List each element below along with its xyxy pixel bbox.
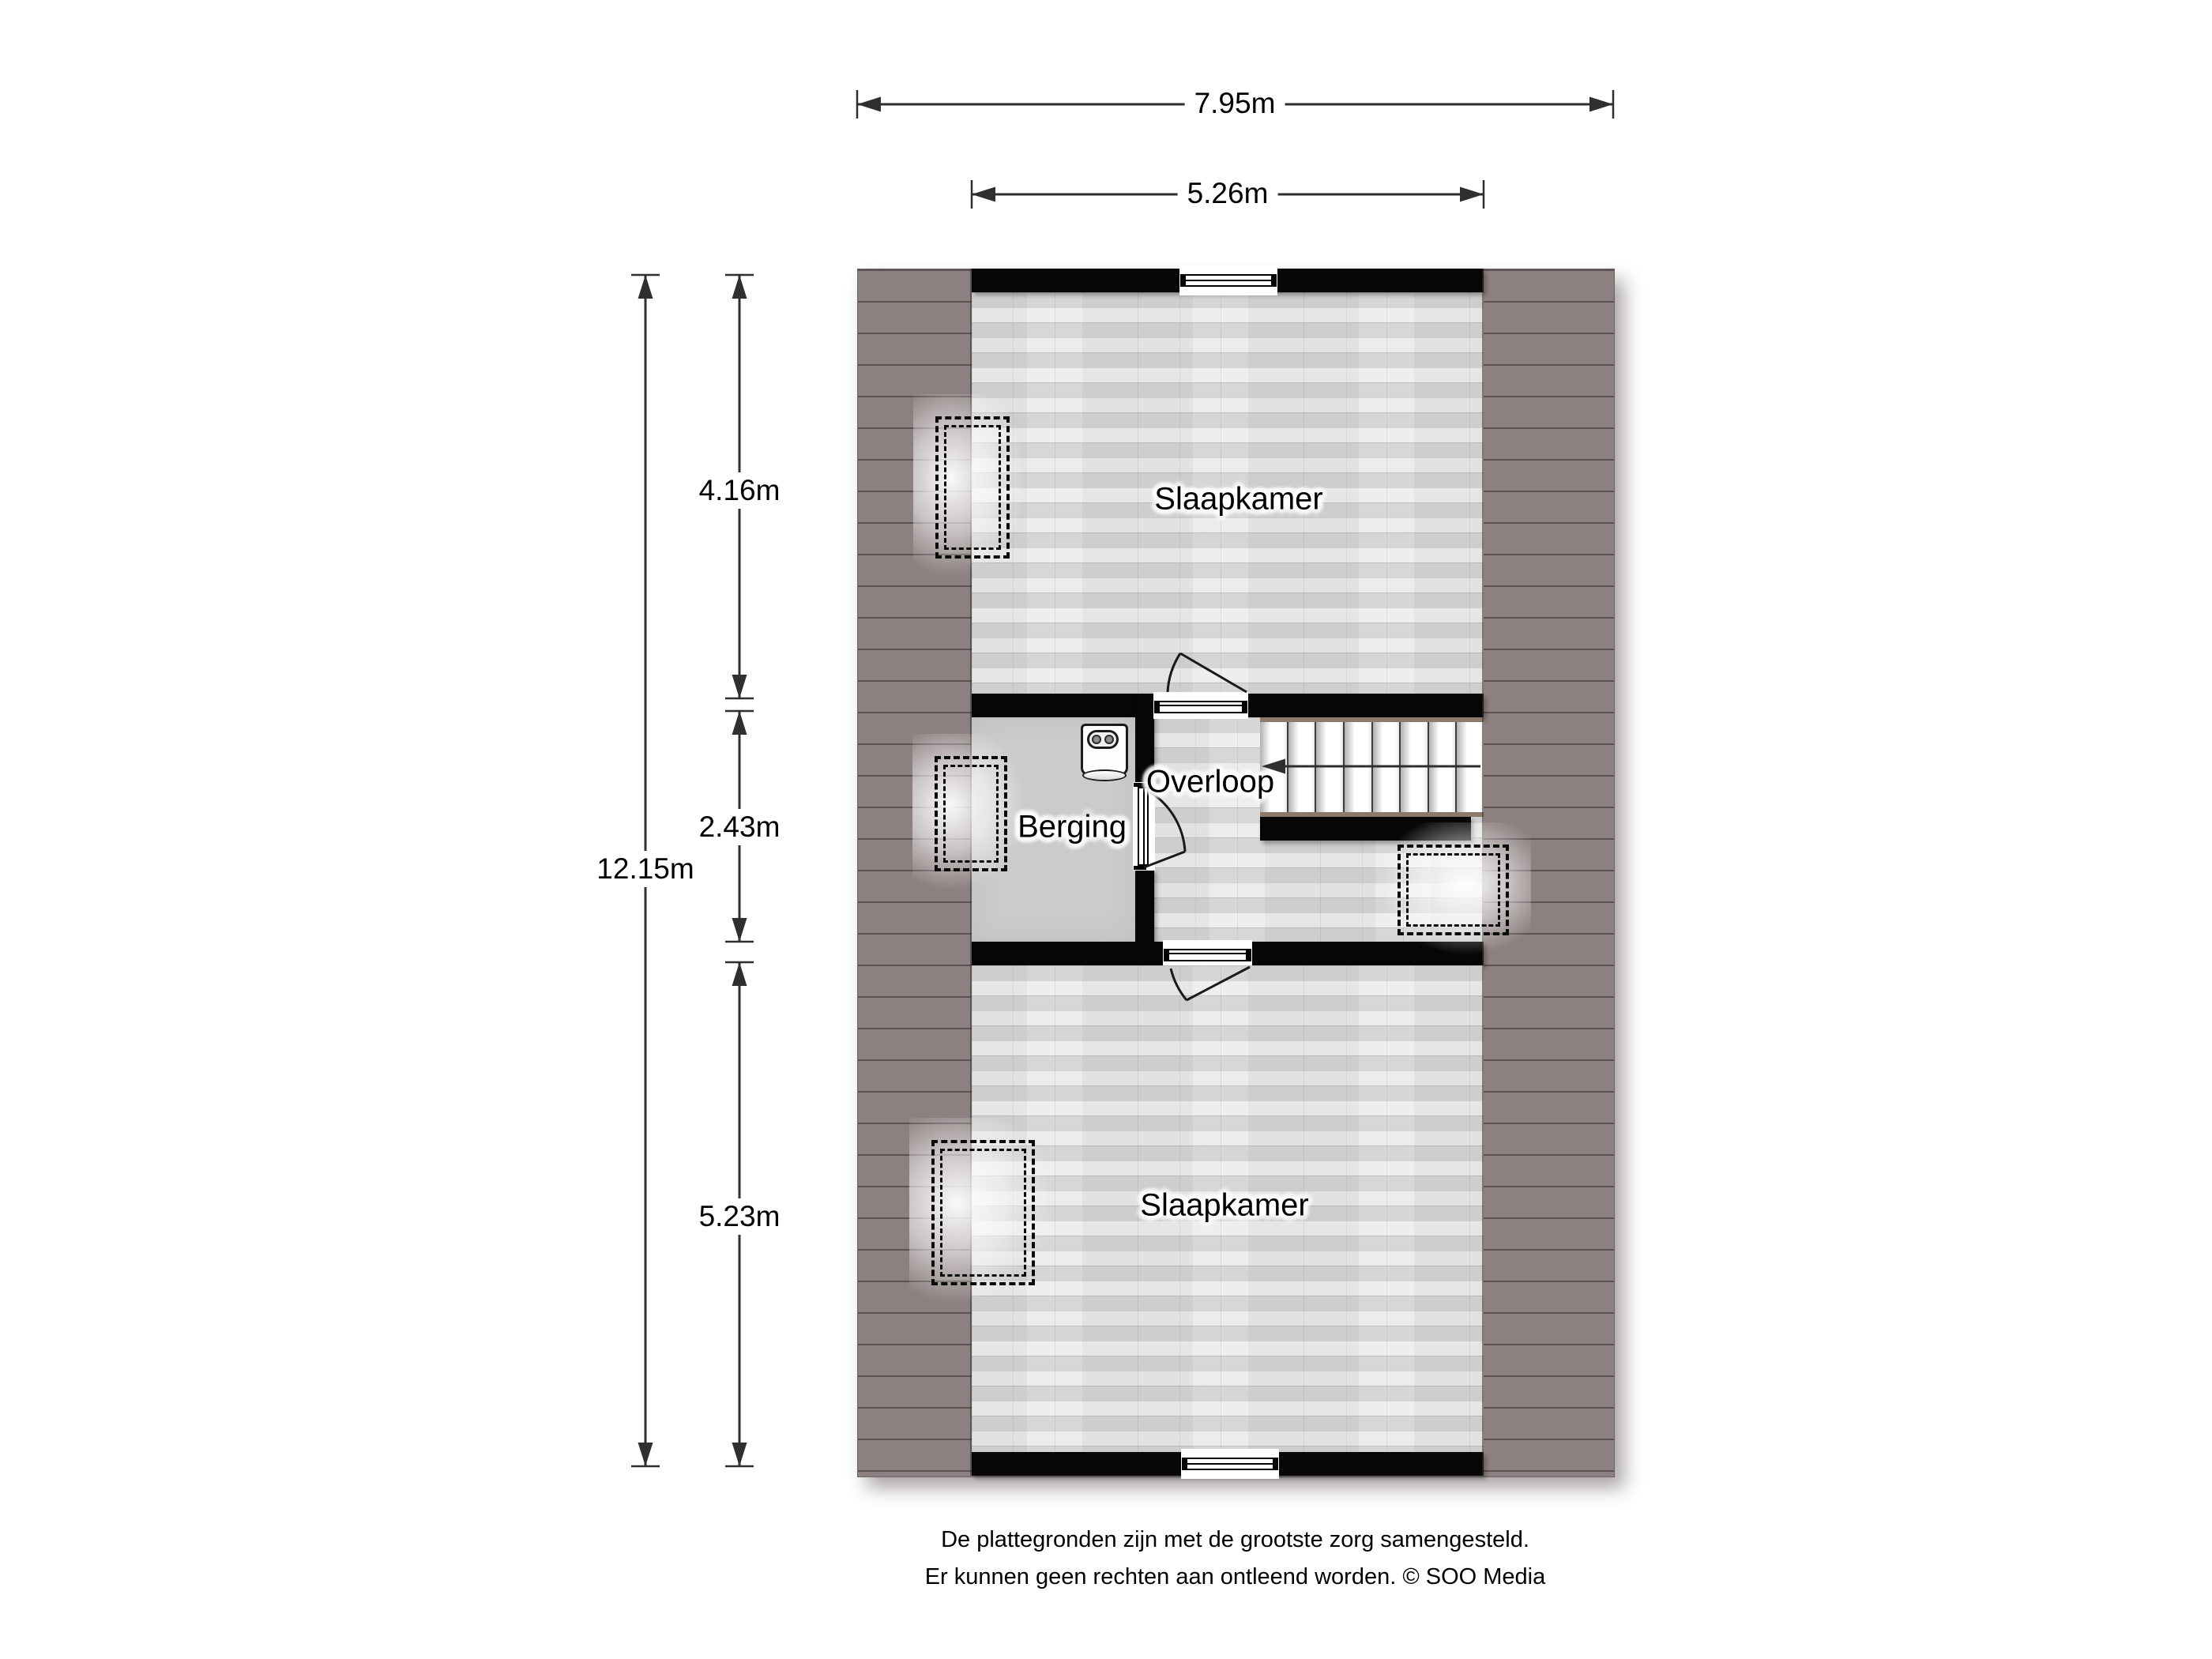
door-bottom-panel-line xyxy=(1168,953,1247,954)
skylight-right-icon xyxy=(1398,845,1509,935)
boiler-pipe-left xyxy=(1092,735,1101,744)
skylight-inner-frame xyxy=(1406,853,1500,927)
dim-label-bottom-section: 5.23m xyxy=(690,1198,790,1235)
room-label-overloop: Overloop xyxy=(1146,765,1274,800)
boiler-icon xyxy=(1081,724,1128,776)
skylight-inner-frame xyxy=(944,425,1001,550)
wall-berging-right-lower xyxy=(1135,869,1154,942)
disclaimer-line-1: De plattegronden zijn met de grootste zo… xyxy=(857,1522,1613,1559)
stair-tread xyxy=(1455,722,1484,812)
door-bottom-leaf-icon xyxy=(1163,940,1252,967)
page: { "plan": { "rooms": [ { "label": "Slaap… xyxy=(0,0,2212,1659)
door-bottom-cap-left xyxy=(1164,949,1168,961)
dim-section-heights xyxy=(725,275,754,1466)
window-bottom-icon xyxy=(1181,1449,1279,1479)
stair-tread xyxy=(1428,722,1456,812)
door-top-leaf-icon xyxy=(1153,692,1248,719)
window-glass-line xyxy=(1184,280,1273,281)
door-berging-cap-bottom xyxy=(1134,866,1146,870)
room-label-slaapkamer-top: Slaapkamer xyxy=(1154,482,1322,517)
stair-tread xyxy=(1287,722,1315,812)
skylight-berging-icon xyxy=(935,756,1007,871)
window-top-icon xyxy=(1179,265,1277,295)
staircase xyxy=(1260,717,1484,817)
window-jamb-right xyxy=(1274,1458,1278,1470)
room-label-slaapkamer-bottom: Slaapkamer xyxy=(1140,1188,1308,1224)
wall-middle-lower-left xyxy=(972,942,1167,965)
stair-tread xyxy=(1315,722,1343,812)
wall-middle-upper-right xyxy=(1247,694,1484,717)
disclaimer-line-2: Er kunnen geen rechten aan ontleend word… xyxy=(857,1559,1613,1596)
door-top-cap-right xyxy=(1243,701,1247,713)
skylight-inner-frame xyxy=(943,765,999,863)
stair-tread xyxy=(1343,722,1371,812)
skylight-bottom-left-icon xyxy=(931,1140,1035,1285)
boiler-pipe-right xyxy=(1104,735,1114,744)
door-bottom-panel xyxy=(1168,949,1247,961)
door-top-panel xyxy=(1158,701,1243,713)
dim-label-top-section: 4.16m xyxy=(690,472,790,509)
window-glass-line xyxy=(1186,1463,1274,1465)
dim-label-inner-width: 5.26m xyxy=(1178,175,1278,212)
dim-label-middle-section: 2.43m xyxy=(690,809,790,845)
stair-tread xyxy=(1399,722,1428,812)
disclaimer: De plattegronden zijn met de grootste zo… xyxy=(857,1522,1613,1596)
door-berging-panel-line xyxy=(1143,787,1145,866)
wall-middle-upper-left xyxy=(972,694,1157,717)
skylight-top-left-icon xyxy=(935,416,1010,559)
window-jamb-right xyxy=(1273,274,1277,287)
boiler-connections xyxy=(1087,730,1119,749)
window-jamb-left xyxy=(1180,274,1184,287)
door-top-panel-line xyxy=(1158,705,1243,706)
dim-label-total-height: 12.15m xyxy=(587,851,703,887)
boiler-base xyxy=(1082,769,1127,781)
room-label-berging: Berging xyxy=(1018,810,1127,845)
stair-tread xyxy=(1371,722,1400,812)
door-berging-cap-top xyxy=(1134,783,1146,787)
dim-label-total-width: 7.95m xyxy=(1185,85,1285,122)
skylight-inner-frame xyxy=(940,1149,1026,1277)
door-bottom-cap-right xyxy=(1247,949,1251,961)
door-top-cap-left xyxy=(1154,701,1158,713)
window-jamb-left xyxy=(1182,1458,1186,1470)
